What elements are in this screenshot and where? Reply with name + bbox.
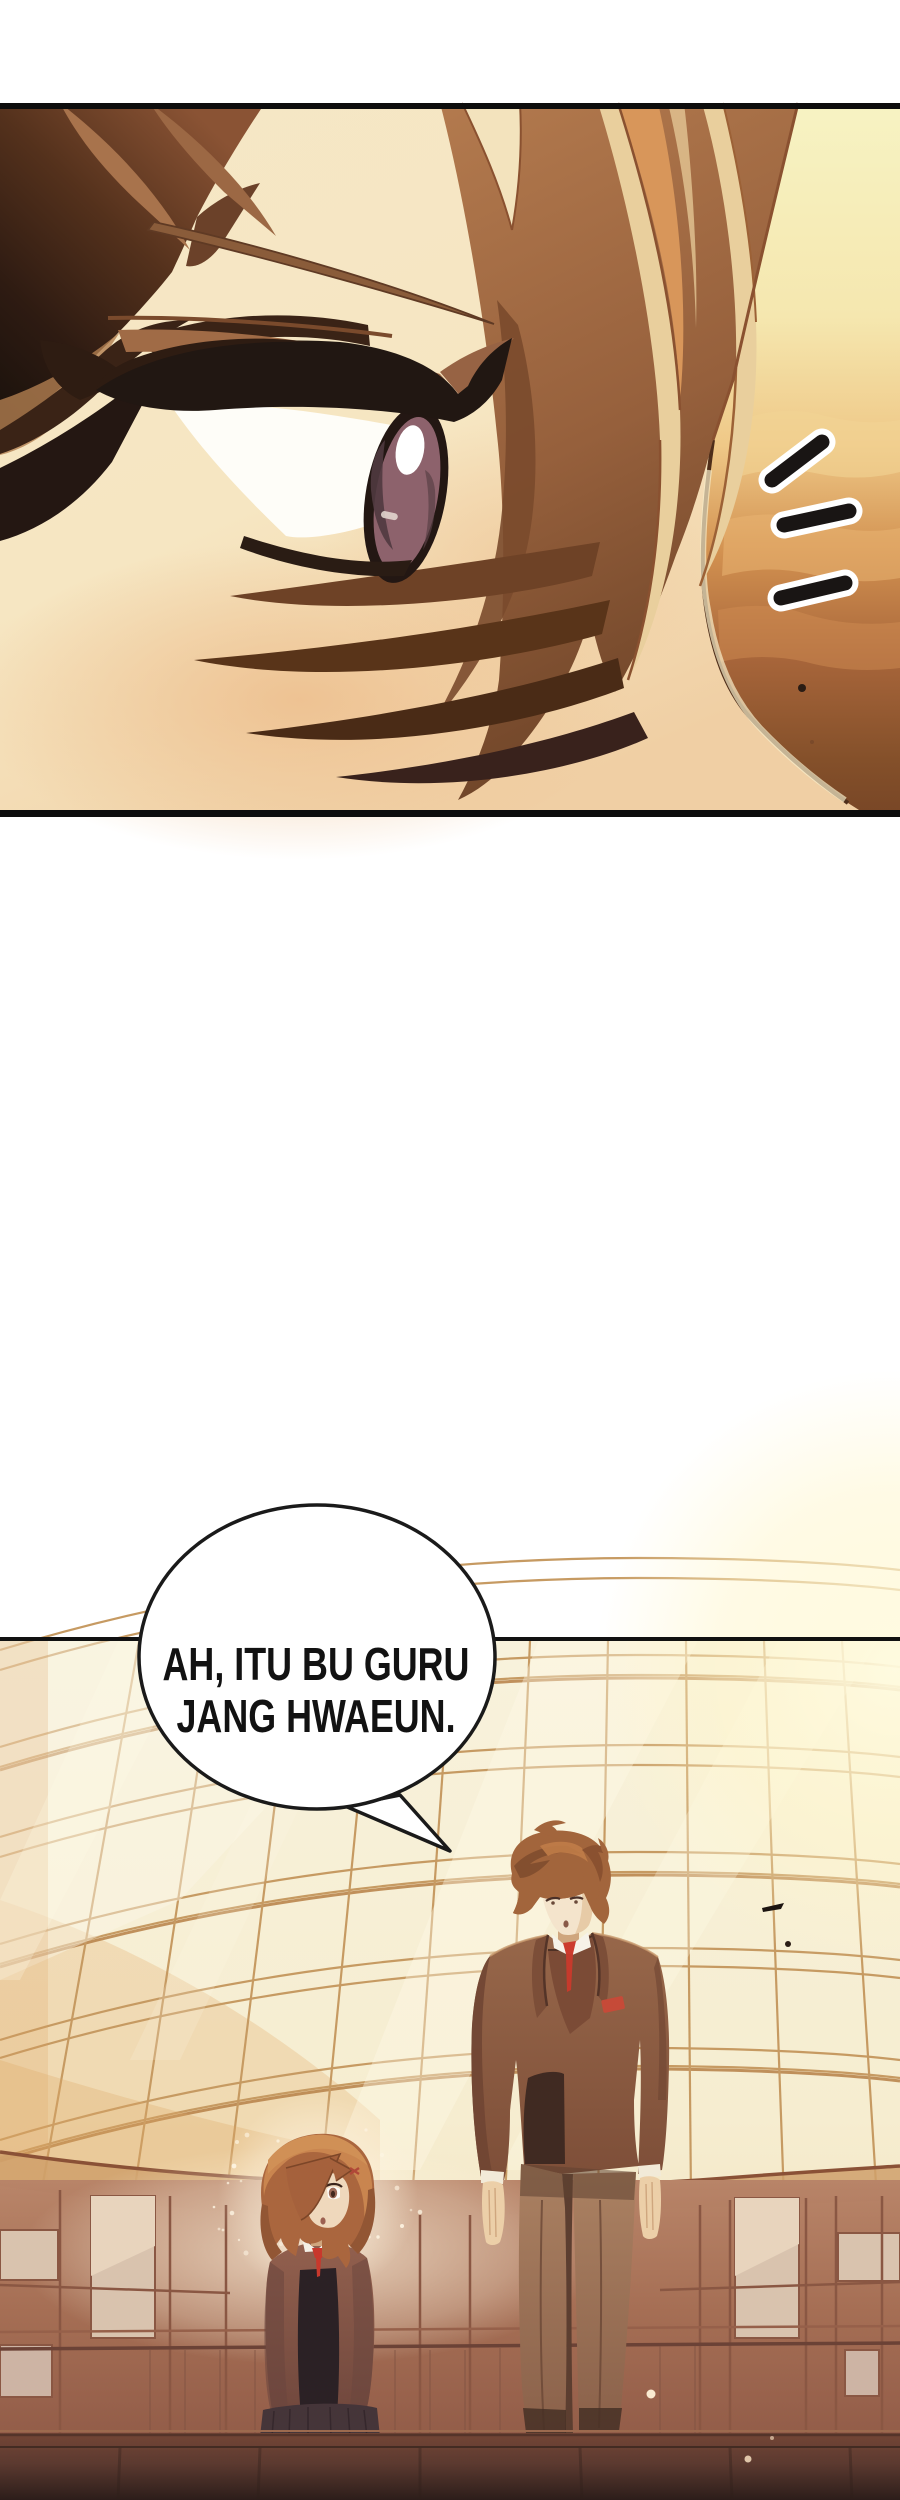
svg-text:AH, ITU BU GURU: AH, ITU BU GURU [163, 1639, 470, 1690]
svg-text:JANG HWAEUN.: JANG HWAEUN. [176, 1691, 455, 1742]
